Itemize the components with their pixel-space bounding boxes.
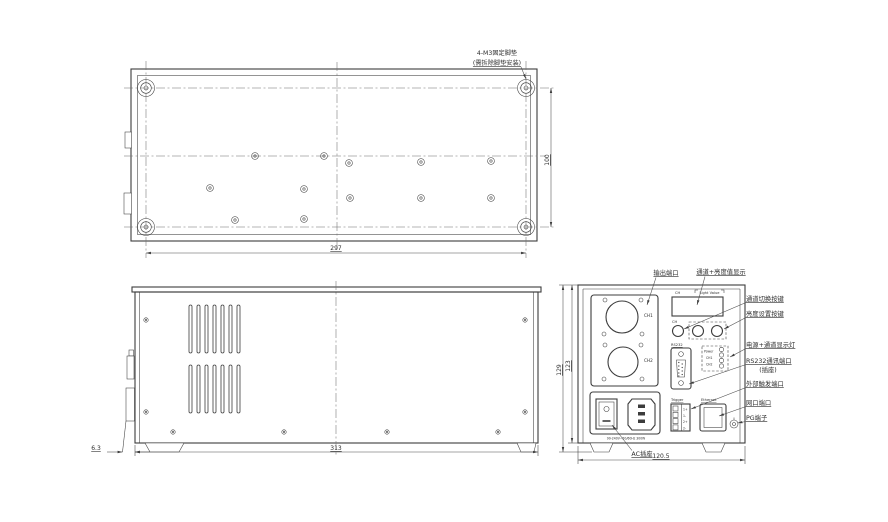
svg-text:网口端口: 网口端口 xyxy=(746,398,771,407)
trigger-pin-2p: 2+ xyxy=(683,420,688,424)
led-ch1-label: CH1 xyxy=(706,356,712,360)
screw-hole xyxy=(488,158,495,165)
technical-drawing: 4-M3固定脚垫 (需拆除脚垫安装) 297 100 xyxy=(0,0,888,522)
display-ch-label: CH xyxy=(675,291,681,295)
side-front-connectors xyxy=(123,350,135,452)
top-view: 4-M3固定脚垫 (需拆除脚垫安装) 297 100 xyxy=(124,49,556,258)
pg-screw xyxy=(730,418,738,429)
corner-feet xyxy=(138,80,535,236)
dim-top-depth-value: 100 xyxy=(544,154,551,166)
output-panel: CH1 CH2 xyxy=(591,295,658,386)
dim-side-foot-value: 6.3 xyxy=(91,445,101,452)
drawing-canvas: 4-M3固定脚垫 (需拆除脚垫安装) 297 100 xyxy=(0,0,888,522)
db9-pins xyxy=(678,362,683,377)
ethernet-port: Ethernet xyxy=(700,398,726,431)
dim-top-depth: 100 xyxy=(544,88,551,227)
top-view-outline xyxy=(131,69,537,241)
trigger-label: Trigger xyxy=(670,398,684,402)
dim-rear-height-inner-value: 123 xyxy=(565,360,572,372)
side-top-lip xyxy=(132,287,541,292)
brightness-down-button xyxy=(693,326,704,337)
callout-pg-terminal: PG端子 xyxy=(738,413,768,423)
ch1-label: CH1 xyxy=(644,313,653,318)
switch-off-symbol xyxy=(604,406,609,411)
svg-text:RS232通讯端口: RS232通讯端口 xyxy=(746,356,792,365)
svg-text:通道切换按键: 通道切换按键 xyxy=(746,294,784,303)
rs232-connector: RS232 xyxy=(671,343,691,389)
vent-slots-bottom xyxy=(189,365,240,413)
trigger-pin-1m: 1- xyxy=(683,414,686,418)
svg-text:(插座): (插座) xyxy=(759,365,777,374)
ch2-label: CH2 xyxy=(644,358,653,363)
centerlines xyxy=(124,61,556,258)
left-tab-lower xyxy=(124,193,132,214)
foot-note-line2: (需拆除脚垫安装) xyxy=(473,59,521,67)
screw-hole xyxy=(301,186,308,193)
brightness-up-button xyxy=(712,326,723,337)
dim-side-length-value: 313 xyxy=(330,445,342,452)
dim-top-width-value: 297 xyxy=(330,245,342,252)
callout-output-port: 输出端口 xyxy=(647,268,679,305)
callout-rs232-port: RS232通讯端口 (插座) xyxy=(689,356,792,384)
dim-top-width: 297 xyxy=(146,245,526,253)
display-value-label: Light Value xyxy=(700,291,721,295)
dim-rear-width-value: 120.5 xyxy=(652,453,669,460)
dim-rear-height-outer-value: 129 xyxy=(556,364,563,376)
svg-text:AC插座: AC插座 xyxy=(631,449,652,458)
trigger-pin-2m: 2- xyxy=(683,426,686,430)
callout-display: 通道+亮度值显示 xyxy=(696,267,745,305)
rear-view: CH1 CH2 CH Light Value CH xyxy=(556,267,796,464)
svg-text:输出端口: 输出端口 xyxy=(653,268,678,277)
ch1-led xyxy=(719,358,723,362)
screw-hole xyxy=(347,195,354,202)
trigger-pin-1p: 1+ xyxy=(683,408,688,412)
screw-hole xyxy=(418,195,425,202)
callout-brightness-key: 亮度设置按键 xyxy=(724,309,784,329)
power-led xyxy=(719,347,723,351)
dim-rear-heights: 123 129 xyxy=(556,285,592,452)
rs232-label: RS232 xyxy=(671,343,683,347)
ch-button-label: CH xyxy=(672,320,678,324)
svg-text:外部触发端口: 外部触发端口 xyxy=(746,379,784,388)
screw-hole xyxy=(232,217,239,224)
foot-note-line1: 4-M3固定脚垫 xyxy=(477,49,518,57)
screw-hole xyxy=(301,216,308,223)
trigger-terminal: Trigger 1+ 1- 2+ 2- xyxy=(670,398,690,431)
ac-panel: 90-240V~50/60Hz 300W xyxy=(590,392,660,441)
output-panel-screws xyxy=(602,298,644,381)
led-ch2-label: CH2 xyxy=(706,363,712,367)
dim-side-foot: 6.3 xyxy=(91,445,150,452)
power-led2 xyxy=(719,353,723,357)
side-screw-holes xyxy=(144,318,527,434)
rear-view-outline xyxy=(578,285,745,443)
display-window: CH Light Value xyxy=(672,290,724,316)
left-tab-upper xyxy=(125,132,132,148)
svg-text:通道+亮度值显示: 通道+亮度值显示 xyxy=(696,267,745,276)
db9-shell xyxy=(677,360,686,377)
screw-hole xyxy=(488,195,495,202)
svg-text:亮度设置按键: 亮度设置按键 xyxy=(746,309,784,318)
iec-inlet xyxy=(628,399,655,430)
vent-slots-top xyxy=(189,305,240,353)
channel-switch-button xyxy=(673,326,684,337)
led-indicators: Power CH1 CH2 xyxy=(702,346,728,371)
led-power-label: Power xyxy=(704,350,714,354)
screw-hole xyxy=(346,160,353,167)
ac-rating-text: 90-240V~50/60Hz 300W xyxy=(607,437,645,441)
screw-holes xyxy=(207,153,495,224)
side-view: 313 6.3 xyxy=(91,281,541,457)
side-view-outline xyxy=(135,292,538,443)
top-view-inner-outline xyxy=(138,76,531,235)
svg-text:电源+通道显示灯: 电源+通道显示灯 xyxy=(746,340,796,349)
ch2-output-connector xyxy=(608,347,638,377)
screw-hole xyxy=(418,159,425,166)
dim-side-length: 313 xyxy=(135,445,538,456)
ch1-output-connector xyxy=(606,301,638,333)
rear-feet xyxy=(590,443,725,452)
power-switch xyxy=(596,399,617,429)
ch2-led xyxy=(719,364,723,368)
svg-text:PG端子: PG端子 xyxy=(746,413,767,422)
foot-note: 4-M3固定脚垫 (需拆除脚垫安装) xyxy=(473,49,526,79)
screw-hole xyxy=(207,185,214,192)
